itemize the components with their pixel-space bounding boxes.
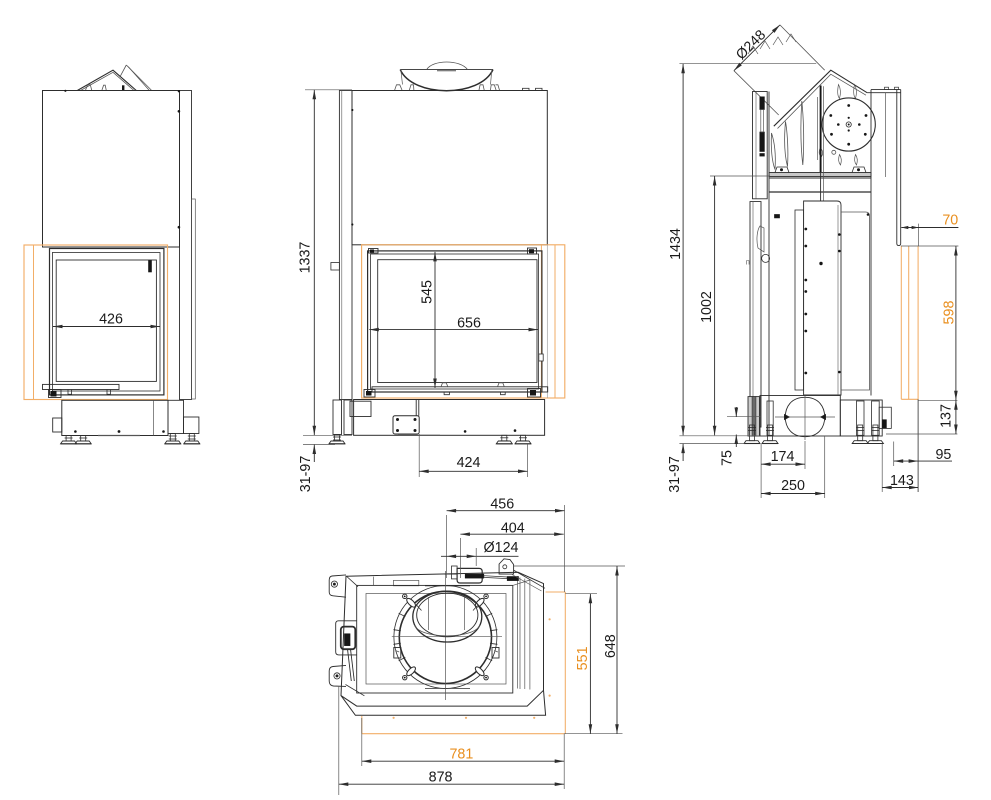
svg-text:1434: 1434 [668, 228, 684, 260]
svg-text:551: 551 [575, 646, 591, 670]
svg-text:545: 545 [420, 280, 436, 304]
svg-text:1002: 1002 [699, 291, 715, 323]
svg-text:424: 424 [457, 455, 481, 471]
svg-text:Ø124: Ø124 [484, 540, 519, 556]
svg-text:95: 95 [935, 447, 951, 463]
svg-text:878: 878 [429, 770, 453, 786]
svg-text:648: 648 [603, 634, 619, 658]
svg-text:31-97: 31-97 [667, 456, 683, 493]
svg-text:598: 598 [942, 301, 958, 325]
svg-text:656: 656 [457, 316, 481, 332]
svg-text:75: 75 [719, 450, 735, 466]
svg-text:781: 781 [449, 747, 473, 763]
svg-text:143: 143 [890, 473, 914, 489]
svg-text:426: 426 [99, 312, 123, 328]
svg-text:250: 250 [781, 478, 805, 494]
svg-text:1337: 1337 [298, 242, 314, 274]
svg-text:404: 404 [501, 521, 525, 537]
svg-text:174: 174 [771, 449, 795, 465]
svg-text:137: 137 [939, 404, 955, 428]
svg-text:31-97: 31-97 [298, 456, 314, 493]
svg-text:456: 456 [490, 496, 514, 512]
svg-text:70: 70 [942, 212, 958, 228]
